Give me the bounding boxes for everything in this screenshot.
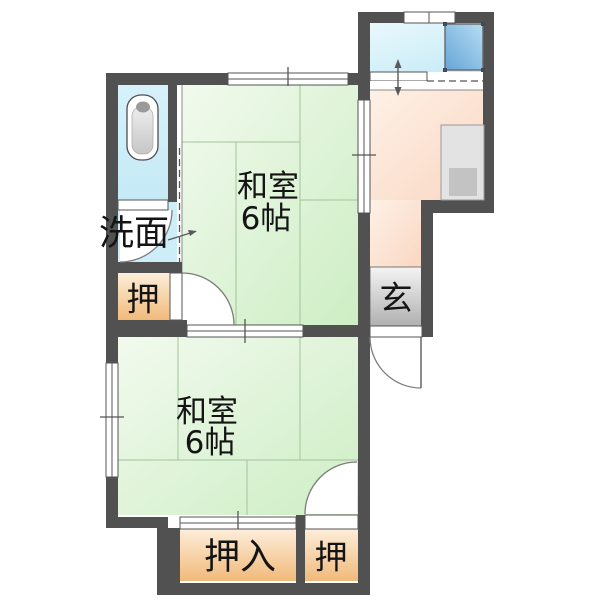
utility-threshold [370,81,483,90]
room-label-oshi-lower: 押 [315,538,348,577]
room-label-oshi-upper: 押 [127,280,160,319]
floor-plan-page: 和室 6帖 和室 6帖 洗面 押 玄 押入 押 [0,0,600,600]
room-label-washitsu-upper: 和室 [237,169,299,205]
kitchen-corridor-floor [370,200,421,267]
floor-plan: 和室 6帖 和室 6帖 洗面 押 玄 押入 押 [0,0,600,600]
bathtub-drain [136,102,150,113]
bathroom-sill [118,200,168,210]
room-size-washitsu-upper: 6帖 [241,201,292,237]
room-size-washitsu-lower: 6帖 [185,425,236,461]
stove-icon [449,168,477,196]
room-label-genkan: 玄 [380,279,413,318]
entrance-threshold [370,326,422,337]
sink-unit [443,22,485,72]
oshi-upper-front [170,273,182,320]
kitchen-counter [441,125,484,200]
bathtub [127,95,158,160]
room-label-oshiire-lower: 押入 [204,537,276,578]
room-label-senmen: 洗面 [99,214,169,254]
oshi-lower-front [305,515,358,529]
